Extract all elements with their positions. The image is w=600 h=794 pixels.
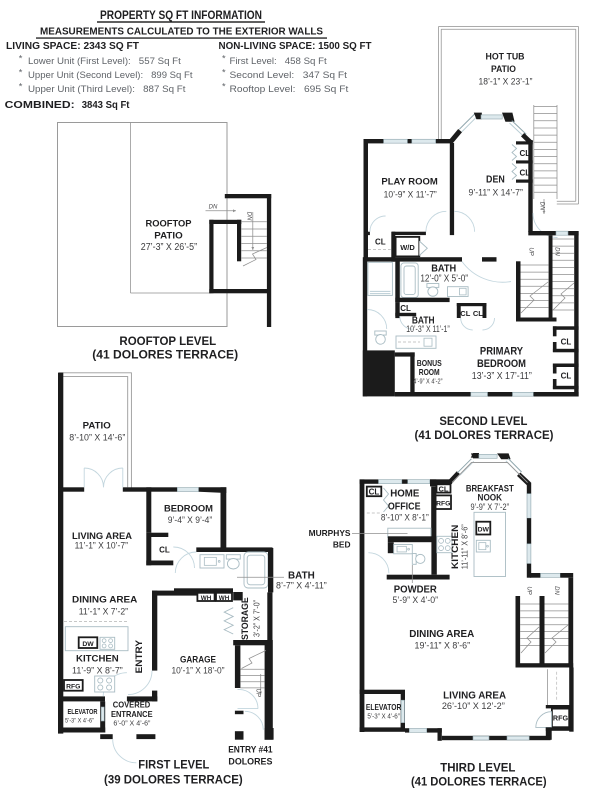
svg-text:18’-1” X 23’-1”: 18’-1” X 23’-1”: [479, 77, 533, 87]
svg-text:Upper Unit (Second Level): 8: Upper Unit (Second Level): 899 Sq Ft: [28, 70, 193, 80]
svg-text:ROOM: ROOM: [419, 367, 440, 377]
svg-text:PRIMARY: PRIMARY: [480, 346, 524, 358]
svg-text:3843 Sq Ft: 3843 Sq Ft: [82, 100, 130, 111]
svg-text:8’-10” X 8’-1”: 8’-10” X 8’-1”: [381, 512, 429, 522]
svg-text:WH: WH: [219, 595, 230, 602]
svg-text:(39 DOLORES TERRACE): (39 DOLORES TERRACE): [104, 772, 243, 786]
svg-text:PATIO: PATIO: [83, 420, 112, 431]
svg-text:DOLORES: DOLORES: [228, 756, 272, 766]
svg-text:ENTRY: ENTRY: [134, 640, 144, 673]
svg-text:9’-9” X 7’-2”: 9’-9” X 7’-2”: [471, 502, 510, 512]
svg-text:PROPERTY SQ FT INFORMATION: PROPERTY SQ FT INFORMATION: [100, 10, 262, 22]
svg-text:*: *: [19, 54, 23, 64]
svg-text:Lower Unit (First Level): 55: Lower Unit (First Level): 557 Sq Ft: [28, 56, 181, 66]
svg-text:PATIO: PATIO: [154, 230, 183, 241]
svg-text:*: *: [19, 82, 23, 92]
svg-text:5’-3” X 4’-6”: 5’-3” X 4’-6”: [367, 711, 400, 720]
svg-text:CL: CL: [460, 309, 470, 318]
svg-text:HOT TUB: HOT TUB: [486, 51, 525, 61]
svg-text:THIRD LEVEL: THIRD LEVEL: [440, 761, 516, 775]
svg-text:Rooftop Level: 695 Sq Ft: Rooftop Level: 695 Sq Ft: [230, 84, 349, 94]
svg-text:CL: CL: [159, 546, 170, 555]
svg-text:MURPHYS: MURPHYS: [309, 528, 351, 538]
svg-text:ROOFTOP LEVEL: ROOFTOP LEVEL: [119, 334, 216, 348]
svg-text:9’-4” X 9’-4”: 9’-4” X 9’-4”: [168, 515, 213, 525]
svg-text:12’-0” X 5’-0”: 12’-0” X 5’-0”: [420, 273, 468, 284]
svg-text:CL: CL: [561, 338, 572, 347]
svg-text:PATIO: PATIO: [491, 64, 516, 74]
svg-text:5’-3” X 4’-6”: 5’-3” X 4’-6”: [65, 718, 94, 725]
svg-text:SECOND LEVEL: SECOND LEVEL: [439, 414, 528, 428]
svg-text:CL: CL: [473, 309, 483, 318]
svg-text:BEDROOM: BEDROOM: [477, 358, 526, 370]
svg-text:ENTRANCE: ENTRANCE: [111, 709, 153, 719]
svg-text:KITCHEN: KITCHEN: [76, 653, 119, 664]
svg-text:DN: DN: [539, 202, 545, 211]
svg-text:(41 DOLORES TERRACE): (41 DOLORES TERRACE): [92, 347, 238, 361]
svg-text:DN: DN: [246, 212, 252, 221]
svg-text:6’-0” X 4’-6”: 6’-0” X 4’-6”: [113, 719, 150, 728]
svg-text:10’-9” X 11’-7”: 10’-9” X 11’-7”: [384, 190, 437, 200]
svg-text:PLAY ROOM: PLAY ROOM: [381, 177, 437, 187]
svg-text:*: *: [19, 68, 23, 78]
svg-text:OFFICE: OFFICE: [388, 502, 421, 513]
svg-text:UP: UP: [526, 586, 532, 594]
svg-text:CL: CL: [439, 484, 449, 493]
svg-text:DINING AREA: DINING AREA: [72, 595, 137, 606]
svg-text:(41 DOLORES TERRACE): (41 DOLORES TERRACE): [411, 775, 547, 789]
svg-text:W/D: W/D: [400, 243, 415, 252]
svg-text:STORAGE: STORAGE: [240, 597, 250, 640]
svg-text:*: *: [222, 68, 226, 78]
svg-text:11’-9” X 8’-7”: 11’-9” X 8’-7”: [72, 665, 123, 675]
svg-text:First Level: 458 Sq Ft: First Level: 458 Sq Ft: [230, 56, 328, 66]
svg-text:CL: CL: [519, 168, 530, 177]
svg-text:(41 DOLORES TERRACE): (41 DOLORES TERRACE): [415, 428, 554, 442]
svg-text:11’-1” X 10’-7”: 11’-1” X 10’-7”: [75, 541, 128, 551]
svg-text:FIRST LEVEL: FIRST LEVEL: [138, 757, 210, 771]
svg-text:DINING AREA: DINING AREA: [409, 629, 474, 640]
svg-text:ELEVATOR: ELEVATOR: [68, 707, 98, 716]
svg-text:GARAGE: GARAGE: [180, 655, 217, 666]
svg-text:RFG: RFG: [66, 683, 80, 690]
svg-text:UP: UP: [528, 247, 534, 255]
svg-text:RFG: RFG: [436, 500, 450, 507]
svg-text:LIVING AREA: LIVING AREA: [443, 690, 506, 701]
svg-text:DEN: DEN: [486, 175, 505, 186]
svg-text:*: *: [222, 82, 226, 92]
svg-text:*: *: [222, 54, 226, 64]
svg-text:CL: CL: [400, 304, 411, 313]
svg-text:9’-11” X 14’-7”: 9’-11” X 14’-7”: [469, 187, 523, 198]
svg-text:5’-9” X 4’-0”: 5’-9” X 4’-0”: [393, 595, 439, 605]
svg-text:4’-9” X 4’-2”: 4’-9” X 4’-2”: [413, 377, 443, 386]
svg-text:11’-1” X 7’-2”: 11’-1” X 7’-2”: [79, 607, 128, 617]
svg-text:8’-10” X 14’-6”: 8’-10” X 14’-6”: [69, 432, 125, 443]
svg-text:DW: DW: [478, 526, 490, 533]
svg-text:CL: CL: [375, 238, 386, 247]
svg-text:3’-2” X 7’-0”: 3’-2” X 7’-0”: [252, 600, 261, 637]
svg-text:26’-10” X 12’-2”: 26’-10” X 12’-2”: [442, 701, 505, 711]
svg-text:COMBINED:: COMBINED:: [5, 100, 75, 111]
svg-text:ENTRY #41: ENTRY #41: [228, 745, 272, 755]
svg-text:10’-1” X 18’-0”: 10’-1” X 18’-0”: [172, 665, 225, 675]
svg-text:CL: CL: [369, 488, 380, 497]
svg-text:HOME: HOME: [390, 489, 419, 500]
svg-text:19’-11” X 8’-6”: 19’-11” X 8’-6”: [415, 641, 471, 651]
svg-text:27’-3” X 26’-5”: 27’-3” X 26’-5”: [141, 242, 197, 253]
svg-text:10’-3” X 11’-1”: 10’-3” X 11’-1”: [406, 324, 449, 334]
svg-text:DW: DW: [82, 641, 94, 648]
svg-text:BEDROOM: BEDROOM: [164, 503, 213, 514]
svg-text:COVERED: COVERED: [113, 699, 151, 709]
svg-text:LIVING SPACE: 2343 SQ FT: LIVING SPACE: 2343 SQ FT: [6, 41, 139, 52]
svg-text:BED: BED: [333, 540, 351, 550]
svg-text:WH: WH: [201, 595, 212, 602]
svg-text:UP: UP: [255, 689, 261, 697]
svg-text:DN: DN: [553, 586, 559, 595]
svg-text:RFG: RFG: [553, 714, 569, 723]
svg-text:CL: CL: [519, 149, 530, 158]
svg-text:POWDER: POWDER: [394, 584, 438, 595]
svg-text:DN: DN: [554, 247, 560, 256]
svg-text:CL: CL: [561, 372, 572, 381]
svg-text:Upper Unit (Third Level): 88: Upper Unit (Third Level): 887 Sq Ft: [28, 84, 186, 94]
svg-text:8’-7” X 4’-11”: 8’-7” X 4’-11”: [276, 581, 327, 591]
svg-text:Second Level: 347 Sq Ft: Second Level: 347 Sq Ft: [230, 70, 348, 80]
svg-text:11’-11” X 8’-6”: 11’-11” X 8’-6”: [461, 524, 470, 569]
svg-text:MEASUREMENTS CALCULATED TO THE: MEASUREMENTS CALCULATED TO THE EXTERIOR …: [40, 27, 323, 38]
svg-text:DN: DN: [209, 205, 218, 211]
svg-text:KITCHEN: KITCHEN: [450, 525, 461, 569]
svg-text:ROOFTOP: ROOFTOP: [146, 218, 193, 229]
svg-text:NON-LIVING SPACE: 1500 SQ FT: NON-LIVING SPACE: 1500 SQ FT: [219, 41, 372, 52]
svg-text:13’-3” X 17’-11”: 13’-3” X 17’-11”: [472, 371, 532, 382]
